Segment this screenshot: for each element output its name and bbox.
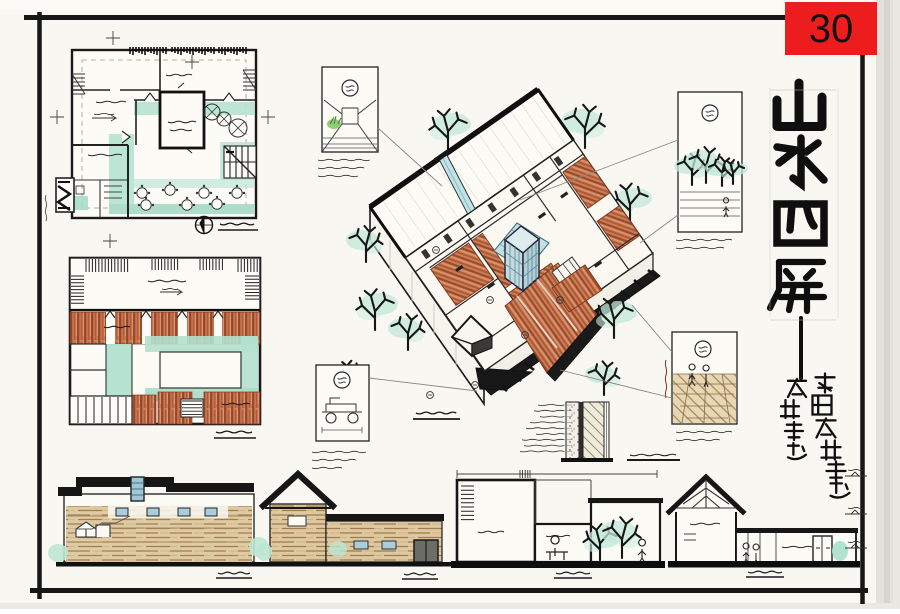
- svg-text:30: 30: [809, 7, 854, 51]
